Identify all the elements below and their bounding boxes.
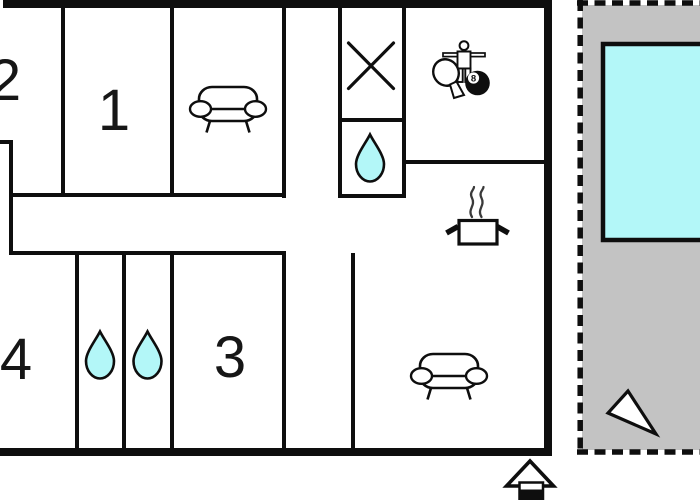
- floor-plan-image: 2 1 3 4 8: [0, 0, 700, 500]
- wall-corridor-living: [351, 253, 355, 448]
- room-label-3: 3: [214, 325, 246, 390]
- cooking-pot-icon: [447, 187, 509, 244]
- water-drop-icon-shower-b: [134, 332, 162, 379]
- wall-shower-b-room3: [170, 255, 174, 448]
- room-label-4: 4: [0, 327, 32, 392]
- wall-room4-shower-a: [75, 255, 79, 448]
- wall-right: [544, 0, 552, 456]
- sofa-icon-living-room: [411, 354, 487, 400]
- wall-lounge-hall: [282, 8, 286, 198]
- wall-bottom: [0, 448, 552, 456]
- wall-notch-vertical: [9, 140, 13, 255]
- eight-ball-number: 8: [471, 74, 476, 85]
- wall-room1-lounge: [170, 8, 174, 194]
- kitchen-living-area: [355, 164, 544, 448]
- house-icon: [507, 461, 554, 500]
- wall-closet-shower-divider: [340, 118, 404, 122]
- wall-top: [3, 0, 552, 8]
- wall-upper-rooms-bottom: [9, 193, 286, 197]
- sofa-icon-lounge: [190, 87, 266, 133]
- swimming-pool-icon: [603, 44, 700, 240]
- floorplan-page: 2 1 3 4 8: [0, 0, 700, 500]
- wall-hall-closet: [338, 8, 342, 198]
- water-drop-icon-shower-a: [86, 332, 114, 379]
- cross-icon: [349, 43, 394, 89]
- room-label-1: 1: [98, 78, 130, 143]
- steam-line: [480, 187, 484, 217]
- corridor-area: [13, 197, 286, 251]
- steam-line: [470, 187, 474, 217]
- wall-room3-corridor: [282, 251, 286, 448]
- wall-corridor-bottom: [9, 251, 286, 255]
- terrace-area: [577, 0, 700, 455]
- wall-closet-games: [402, 8, 406, 198]
- eight-ball-icon: 8: [465, 71, 490, 96]
- wall-shower-bottom: [338, 194, 406, 198]
- wall-gamesroom-bottom: [404, 160, 544, 164]
- wall-shower-a-shower-b: [122, 255, 126, 448]
- water-drop-icon-shower-top: [356, 135, 384, 182]
- wall-room2-room1: [61, 8, 65, 194]
- games-icons: 8: [428, 41, 490, 98]
- room-label-2: 2: [0, 48, 21, 113]
